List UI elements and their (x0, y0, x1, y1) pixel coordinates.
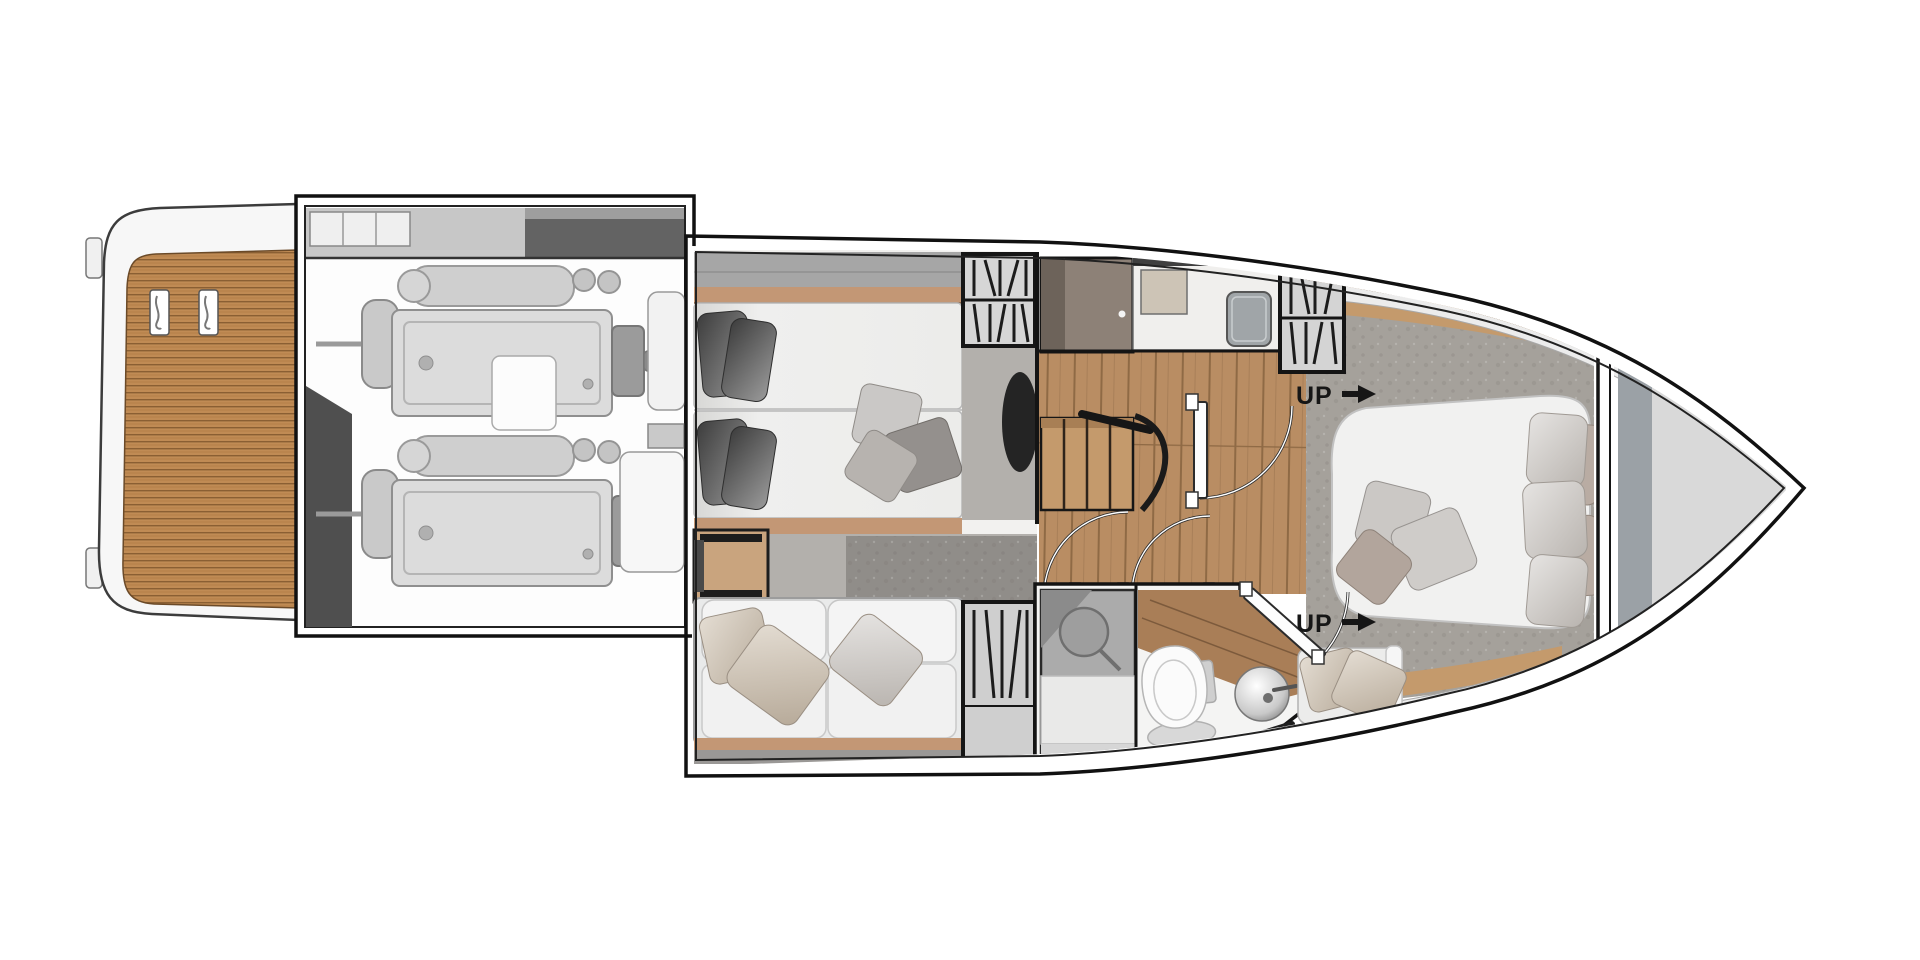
shower-head-icon (1060, 608, 1108, 656)
bed-pillow (1526, 412, 1589, 488)
platform-side-step (86, 238, 102, 278)
guest-cabin (694, 250, 1038, 764)
bow-bulkhead (1594, 316, 1614, 686)
corridor-landing (1039, 258, 1310, 602)
yacht-lower-deck-floorplan: UP UP (0, 0, 1920, 960)
basin-drain (1263, 693, 1273, 703)
door-hinge (1186, 492, 1198, 508)
equipment-box (648, 424, 684, 448)
headboard-shelf (694, 287, 963, 303)
water-tank (620, 452, 684, 572)
fuel-tank (648, 292, 685, 410)
bow-side-band (1618, 346, 1652, 642)
bow-section (1618, 342, 1790, 646)
up-label: UP (1296, 382, 1333, 410)
bed-pillow (1525, 554, 1589, 629)
floorplan-drawing: UP UP (0, 0, 1920, 960)
stool-trim (700, 590, 762, 598)
bed-pillow (1522, 480, 1588, 559)
engine-room (296, 196, 694, 636)
counter-box (1141, 270, 1187, 314)
door-hinge (1240, 582, 1252, 596)
hanging-locker-aft-bottom (963, 602, 1035, 758)
stool-trim (700, 534, 762, 542)
hull-void-wedge (306, 386, 352, 627)
sofa-base-trim (694, 738, 963, 750)
transom-door (310, 212, 410, 246)
garage-hatch-highlight (525, 208, 684, 219)
cabinet-handle (1119, 311, 1126, 318)
cabin-rug-texture (846, 536, 1037, 604)
up-label: UP (1296, 610, 1333, 638)
shower-stall (1041, 590, 1135, 756)
swim-platform (86, 204, 298, 620)
generator-box (492, 356, 556, 430)
washbasin (1235, 667, 1289, 721)
shower-bench (1041, 676, 1135, 744)
bedside-table (1002, 372, 1038, 472)
cabinet-shadow (1041, 258, 1065, 352)
door-hinge (1312, 650, 1324, 664)
counter-sink (1227, 292, 1271, 346)
hanging-locker-aft-top (963, 254, 1035, 346)
door-hinge (1186, 394, 1198, 410)
side-deck-band (694, 252, 963, 287)
